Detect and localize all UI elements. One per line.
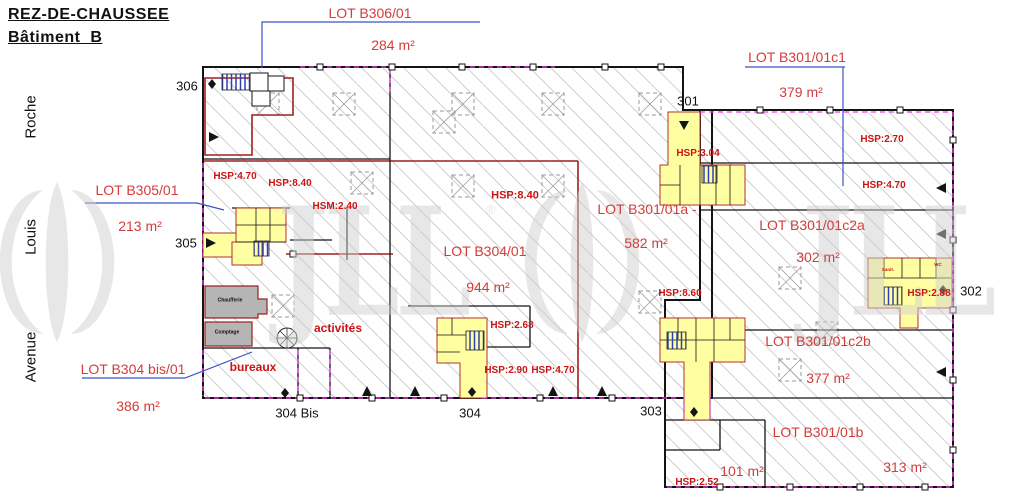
street-label-roche: Roche xyxy=(24,95,39,138)
lot-label-b301-01a: LOT B301/01a - xyxy=(597,202,696,216)
room-label-chaufferie: Chaufferie xyxy=(218,299,243,304)
lot-label-b304bis-01: LOT B304 bis/01 xyxy=(81,362,186,376)
lot-label-b301-01c2a: LOT B301/01c2a xyxy=(759,218,865,232)
stair-icon-305 xyxy=(254,241,269,256)
height-label: HSP:2.52 xyxy=(675,478,718,488)
jll-ring-icon xyxy=(0,182,114,342)
lot-area-b301-01b-annex: 101 m² xyxy=(720,464,764,478)
lot-area-b301-01c2b: 377 m² xyxy=(806,371,850,385)
room-label-wc: WC xyxy=(934,263,942,268)
lot-label-b305-01: LOT B305/01 xyxy=(95,183,178,197)
lot-area-b301-01a: 582 m² xyxy=(624,236,668,250)
watermark-text: JLL xyxy=(269,174,470,351)
height-label: HSP:2.70 xyxy=(860,135,903,145)
height-label: HSP:4.70 xyxy=(213,172,256,182)
building-title: Bâtiment B xyxy=(8,29,102,47)
height-label: HSP:4.70 xyxy=(531,366,574,376)
height-label: HSP:8.40 xyxy=(268,179,311,189)
lot-area-b306-01: 284 m² xyxy=(371,38,415,52)
lot-area-b305-01: 213 m² xyxy=(118,219,162,233)
height-label: HSP:2.68 xyxy=(490,321,533,331)
entrance-label-301: 301 xyxy=(677,95,699,108)
entrance-label-302: 302 xyxy=(960,285,982,298)
stair-icon-304 xyxy=(466,331,484,350)
lot-label-b301-01b: LOT B301/01b xyxy=(773,425,864,439)
entrance-label-304bis: 304 Bis xyxy=(275,407,318,420)
height-label: HSP:4.70 xyxy=(862,181,905,191)
street-label-louis: Louis xyxy=(24,219,39,255)
lot-label-b306-01: LOT B306/01 xyxy=(328,6,411,20)
lot-area-b304bis-01: 386 m² xyxy=(116,399,160,413)
stair-icon-306 xyxy=(222,74,250,90)
lot-area-b301-01c1: 379 m² xyxy=(779,85,823,99)
street-label-avenue: Avenue xyxy=(24,332,39,383)
lot-label-b304-01: LOT B304/01 xyxy=(443,244,526,258)
lot-label-b301-01c1: LOT B301/01c1 xyxy=(748,50,846,64)
stair-icon-301 xyxy=(702,166,717,183)
floor-plan-page: JLL JLL ® REZ-DE-CHAUSSEE Bâtiment B Roc… xyxy=(0,0,1024,501)
page-title: REZ-DE-CHAUSSEE xyxy=(8,6,169,24)
lot-label-b301-01c2b: LOT B301/01c2b xyxy=(765,334,871,348)
height-label: HSP:3.04 xyxy=(676,149,719,159)
lot-area-b301-01b: 313 m² xyxy=(883,460,927,474)
watermark-reg-icon: ® xyxy=(486,202,496,217)
entrance-label-304: 304 xyxy=(459,407,481,420)
entrance-label-305: 305 xyxy=(175,237,197,250)
stair-icon-303 xyxy=(667,332,686,349)
lot-area-b301-01c2a: 302 m² xyxy=(796,250,840,264)
entrance-label-303: 303 xyxy=(640,405,662,418)
height-label: HSM:2.40 xyxy=(312,202,357,212)
room-label-activites: activités xyxy=(314,322,362,334)
room-label-comptage: Comptage xyxy=(215,331,239,336)
height-label: HSP:2.90 xyxy=(484,366,527,376)
height-label: HSP:2.88 xyxy=(907,289,950,299)
lot-area-b304-01: 944 m² xyxy=(466,280,510,294)
room-label-sanit: Sanit. xyxy=(882,268,894,273)
height-label: HSP:8.60 xyxy=(658,289,701,299)
height-label: HSP:8.40 xyxy=(491,191,539,202)
entrance-label-306: 306 xyxy=(176,80,198,93)
room-label-bureaux: bureaux xyxy=(230,361,277,373)
